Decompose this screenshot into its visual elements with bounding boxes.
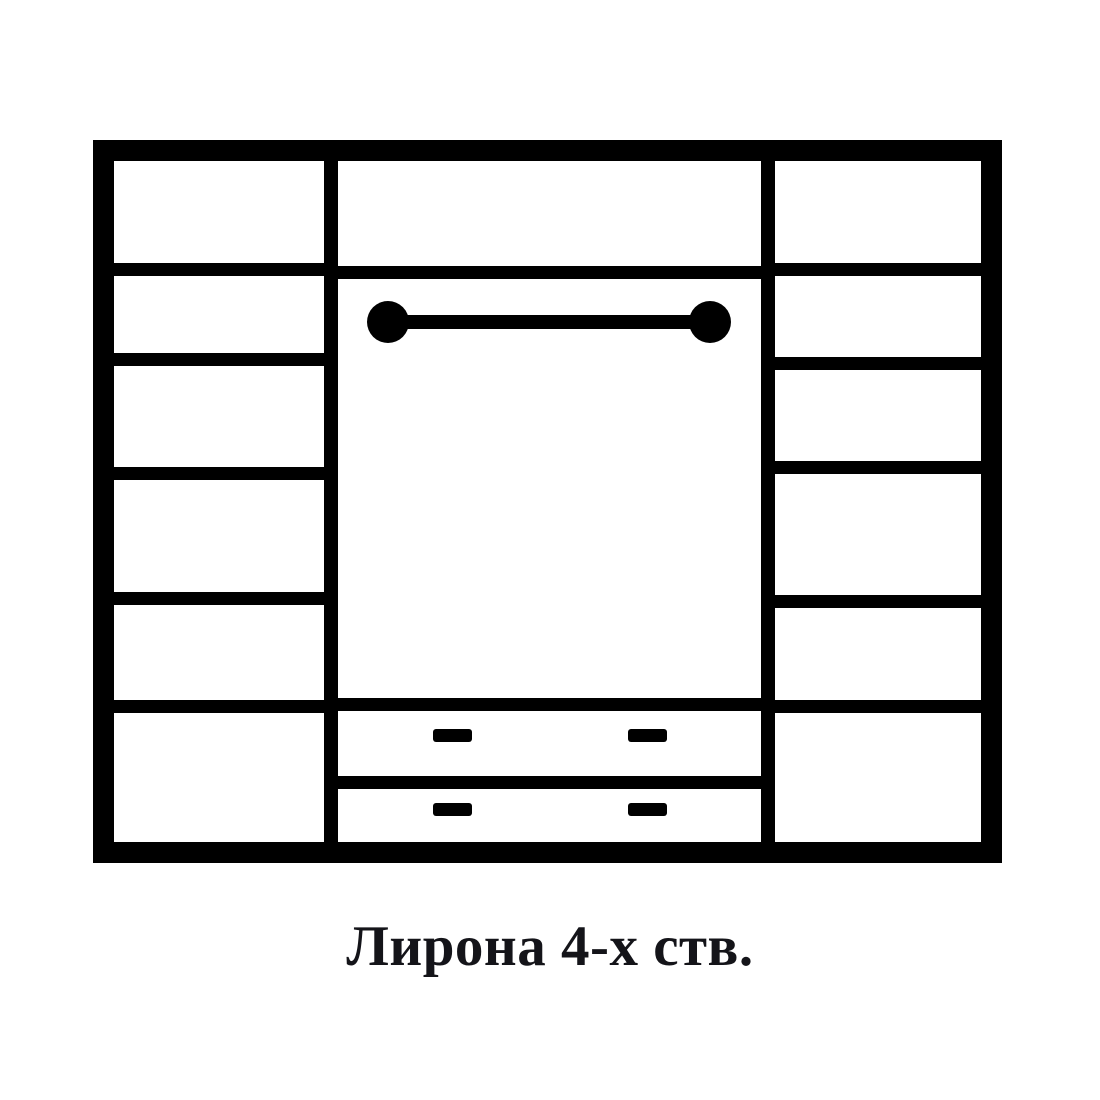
shelf-line	[114, 263, 338, 276]
drawer-handle	[628, 729, 667, 742]
shelf-line	[114, 353, 338, 366]
top-shelf-line	[338, 266, 761, 279]
drawer-handle	[433, 803, 472, 816]
hanging-rod-end	[367, 301, 409, 343]
hanging-rod-bar	[388, 315, 710, 329]
wardrobe-frame	[93, 140, 1002, 863]
shelf-line	[114, 467, 338, 480]
shelf-line	[761, 595, 981, 608]
hanging-rod-end	[689, 301, 731, 343]
drawer-handle	[628, 803, 667, 816]
shelf-line	[761, 357, 981, 370]
drawer-divider-line	[338, 776, 761, 789]
shelf-line	[114, 700, 338, 713]
shelf-line	[761, 700, 981, 713]
drawer-handle	[433, 729, 472, 742]
drawer-top-line	[338, 698, 761, 711]
shelf-line	[761, 263, 981, 276]
shelf-line	[761, 461, 981, 474]
diagram-caption: Лирона 4-х ств.	[0, 918, 1100, 975]
shelf-line	[114, 592, 338, 605]
